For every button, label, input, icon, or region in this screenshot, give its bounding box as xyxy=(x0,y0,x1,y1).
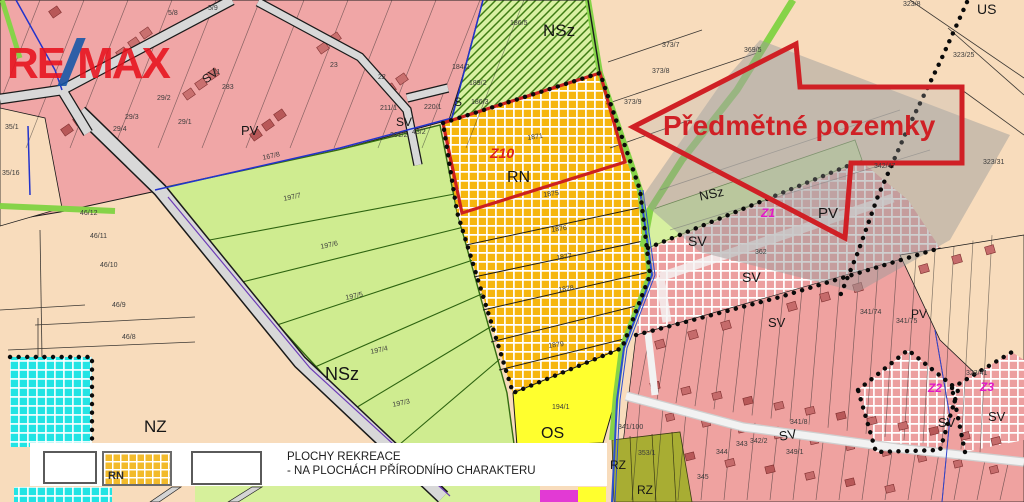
zone-nz-cyan-checker xyxy=(10,357,92,447)
legend-swatch-rn: RN xyxy=(102,451,172,486)
zoning-map-screenshot: NSzNSzNSzNZRNOSPVPVPVSVSVSVSVSVSVSVSVSUS… xyxy=(0,0,1024,502)
legend-swatch-empty-1 xyxy=(43,451,97,484)
legend-swatch-rn-label: RN xyxy=(108,470,124,482)
logo-max: MAX xyxy=(77,39,169,88)
legend-swatch-empty-2 xyxy=(191,451,262,485)
legend-text: PLOCHY REKREACE - NA PLOCHÁCH PŘÍRODNÍHO… xyxy=(287,450,536,479)
arrow-annotation-text: Předmětné pozemky xyxy=(663,110,1003,142)
zone-rz-olive xyxy=(612,432,692,502)
legend: RN PLOCHY REKREACE - NA PLOCHÁCH PŘÍRODN… xyxy=(30,443,607,486)
magenta-sliver xyxy=(540,490,578,502)
remax-logo: REMAX xyxy=(7,38,169,89)
legend-text-line2: - NA PLOCHÁCH PŘÍRODNÍHO CHARAKTERU xyxy=(287,464,536,478)
logo-re: RE xyxy=(7,39,64,88)
legend-text-line1: PLOCHY REKREACE xyxy=(287,450,536,464)
cyan-sliver xyxy=(14,487,112,502)
yellow-sliver xyxy=(578,487,606,502)
